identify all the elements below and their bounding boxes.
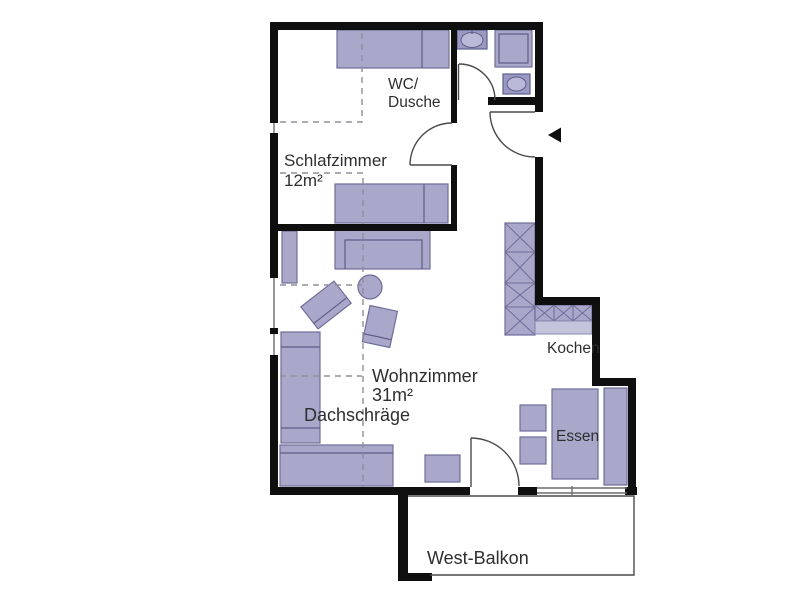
balcony-door-swing — [471, 438, 519, 486]
sofa — [335, 230, 430, 269]
wall-bedroom-1 — [451, 22, 457, 123]
small-table — [425, 455, 460, 482]
bed-bottom — [335, 184, 448, 223]
wall-balcony-left — [398, 487, 408, 581]
washbasin-bowl — [461, 33, 483, 48]
bed-top — [337, 30, 449, 68]
label-wc: WC/ — [388, 76, 419, 93]
armchair-left-body — [301, 281, 351, 329]
counter-apron — [535, 321, 592, 334]
armchair-right — [362, 305, 397, 347]
label-schlafzimmer: Schlafzimmer — [284, 151, 387, 170]
entrance-door-swing — [490, 112, 535, 157]
bedroom-door-swing — [410, 123, 452, 165]
label-kochen: Kochen — [547, 340, 600, 357]
floorplan-drawing: WC/ Dusche Schlafzimmer 12m² Wohnzimmer … — [0, 0, 800, 600]
label-wohnzimmer: Wohnzimmer — [372, 366, 478, 386]
lounger-left — [281, 332, 320, 443]
kitchen-counter-horizontal — [535, 305, 592, 334]
dining-chair-1 — [520, 405, 546, 431]
label-schlafzimmer-area: 12m² — [284, 171, 323, 190]
wall-balcony-stub — [398, 573, 432, 581]
armchair-left — [301, 281, 351, 329]
wall-top — [270, 22, 543, 30]
dining-bench — [604, 388, 627, 485]
wall-bottom-2 — [518, 487, 537, 495]
bathroom-fixtures — [457, 30, 532, 94]
sofa-bottom — [280, 445, 393, 486]
shower — [495, 30, 532, 67]
dining-chair-2 — [520, 437, 546, 464]
round-side-table — [358, 275, 382, 299]
wall-right-lower — [628, 378, 636, 495]
toilet-bowl — [507, 77, 526, 91]
wall-step-h1 — [535, 297, 600, 305]
label-wohnzimmer-area: 31m² — [372, 385, 413, 405]
wall-bottom-1 — [270, 487, 470, 495]
wall-left-1 — [270, 22, 278, 123]
wall-bath-bottom — [488, 97, 543, 105]
wall-left-3 — [270, 355, 278, 495]
armchair-right-body — [362, 305, 397, 347]
shelf-left — [282, 231, 297, 283]
kitchen-counter-vertical — [505, 223, 535, 335]
wall-left-mullion — [270, 328, 278, 334]
wall-left-2 — [270, 133, 278, 278]
entrance-arrow-icon — [548, 128, 561, 143]
label-essen: Essen — [556, 428, 599, 445]
bathroom-door-swing — [459, 64, 495, 100]
wall-right-upper-2 — [535, 157, 543, 297]
floorplan-canvas: WC/ Dusche Schlafzimmer 12m² Wohnzimmer … — [0, 0, 800, 600]
wall-bedroom-2 — [451, 165, 457, 231]
label-dachschraege: Dachschräge — [304, 405, 410, 425]
label-dusche: Dusche — [388, 94, 441, 111]
label-west-balkon: West-Balkon — [427, 548, 529, 568]
wall-divider-bedroom-living — [278, 224, 457, 231]
